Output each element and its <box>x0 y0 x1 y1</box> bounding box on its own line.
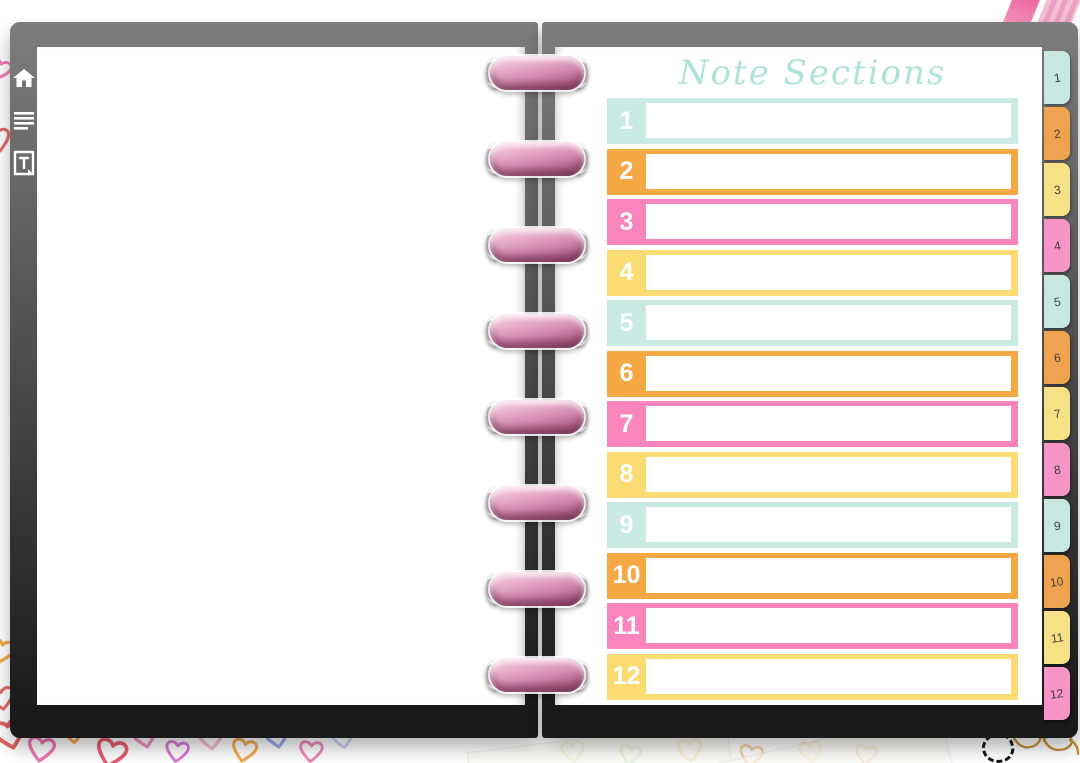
right-page: Note Sections 123456789101112 1234567891… <box>542 22 1078 738</box>
note-section-rows: 123456789101112 <box>607 98 1018 700</box>
heart-doodle <box>297 739 325 763</box>
section-name-field-5[interactable] <box>646 305 1011 340</box>
row-number: 8 <box>607 452 646 498</box>
ring-bar <box>490 486 584 520</box>
side-tab-3[interactable]: 3 <box>1044 163 1070 216</box>
ring-bar <box>490 56 584 90</box>
section-row-2[interactable]: 2 <box>607 149 1018 195</box>
section-name-field-10[interactable] <box>646 558 1011 593</box>
heart-doodle <box>91 734 132 763</box>
section-name-field-11[interactable] <box>646 608 1011 643</box>
tab-label: 7 <box>1053 406 1062 421</box>
side-tab-6[interactable]: 6 <box>1044 331 1070 384</box>
section-row-6[interactable]: 6 <box>607 351 1018 397</box>
section-name-field-9[interactable] <box>646 507 1011 542</box>
side-tab-10[interactable]: 10 <box>1044 555 1070 608</box>
section-row-3[interactable]: 3 <box>607 199 1018 245</box>
text-template-icon <box>12 150 36 176</box>
ring-bar <box>490 142 584 176</box>
row-number: 5 <box>607 300 646 346</box>
index-list-icon <box>12 108 36 132</box>
section-row-4[interactable]: 4 <box>607 250 1018 296</box>
tab-label: 2 <box>1053 126 1062 141</box>
ring-bar <box>490 572 584 606</box>
heart-doodle <box>228 735 261 763</box>
side-tab-7[interactable]: 7 <box>1044 387 1070 440</box>
section-row-5[interactable]: 5 <box>607 300 1018 346</box>
section-row-12[interactable]: 12 <box>607 654 1018 700</box>
section-name-field-1[interactable] <box>646 103 1011 138</box>
section-row-7[interactable]: 7 <box>607 401 1018 447</box>
note-sections-page: Note Sections 123456789101112 <box>555 47 1042 705</box>
side-tab-8[interactable]: 8 <box>1044 443 1070 496</box>
tab-label: 11 <box>1050 630 1064 646</box>
section-row-1[interactable]: 1 <box>607 98 1018 144</box>
page-title: Note Sections <box>607 51 1018 95</box>
left-page <box>10 22 538 738</box>
ring-bar <box>490 314 584 348</box>
row-number: 11 <box>607 603 646 649</box>
heart-doodle <box>162 738 191 763</box>
index-list-button[interactable] <box>11 106 37 134</box>
tab-label: 12 <box>1049 686 1064 702</box>
section-row-9[interactable]: 9 <box>607 502 1018 548</box>
tab-label: 9 <box>1053 518 1062 533</box>
tab-label: 4 <box>1053 238 1062 253</box>
binder-ring <box>486 226 588 264</box>
side-tab-1[interactable]: 1 <box>1044 51 1070 104</box>
side-tab-2[interactable]: 2 <box>1044 107 1070 160</box>
heart-doodle <box>24 734 58 763</box>
row-number: 1 <box>607 98 646 144</box>
side-tab-11[interactable]: 11 <box>1044 611 1070 664</box>
tab-label: 3 <box>1053 182 1062 197</box>
binder-ring <box>486 656 588 694</box>
ring-bar <box>490 658 584 692</box>
section-name-field-6[interactable] <box>646 356 1011 391</box>
section-name-field-8[interactable] <box>646 457 1011 492</box>
tab-label: 1 <box>1053 70 1062 85</box>
section-name-field-2[interactable] <box>646 154 1011 189</box>
tab-label: 5 <box>1053 294 1062 309</box>
row-number: 6 <box>607 351 646 397</box>
binder-ring <box>486 570 588 608</box>
tab-label: 10 <box>1049 574 1064 590</box>
row-number: 12 <box>607 654 646 700</box>
side-tab-12[interactable]: 12 <box>1044 667 1070 720</box>
home-icon <box>12 66 36 90</box>
binder-ring <box>486 54 588 92</box>
row-number: 2 <box>607 149 646 195</box>
section-row-8[interactable]: 8 <box>607 452 1018 498</box>
side-tab-4[interactable]: 4 <box>1044 219 1070 272</box>
section-name-field-7[interactable] <box>646 406 1011 441</box>
notebook-stage: Note Sections 123456789101112 1234567891… <box>0 0 1080 763</box>
binder-ring <box>486 140 588 178</box>
section-name-field-12[interactable] <box>646 659 1011 694</box>
section-row-10[interactable]: 10 <box>607 553 1018 599</box>
left-page-canvas[interactable] <box>37 47 525 705</box>
side-tab-9[interactable]: 9 <box>1044 499 1070 552</box>
row-number: 10 <box>607 553 646 599</box>
section-name-field-3[interactable] <box>646 204 1011 239</box>
binder-ring <box>486 398 588 436</box>
text-template-button[interactable] <box>11 149 37 177</box>
side-tab-5[interactable]: 5 <box>1044 275 1070 328</box>
row-number: 9 <box>607 502 646 548</box>
row-number: 3 <box>607 199 646 245</box>
section-name-field-4[interactable] <box>646 255 1011 290</box>
tab-label: 8 <box>1053 462 1062 477</box>
row-number: 4 <box>607 250 646 296</box>
row-number: 7 <box>607 401 646 447</box>
home-button[interactable] <box>11 64 37 92</box>
ring-bar <box>490 228 584 262</box>
binder-ring <box>486 484 588 522</box>
ring-bar <box>490 400 584 434</box>
binder-ring <box>486 312 588 350</box>
tab-label: 6 <box>1053 350 1062 365</box>
section-row-11[interactable]: 11 <box>607 603 1018 649</box>
